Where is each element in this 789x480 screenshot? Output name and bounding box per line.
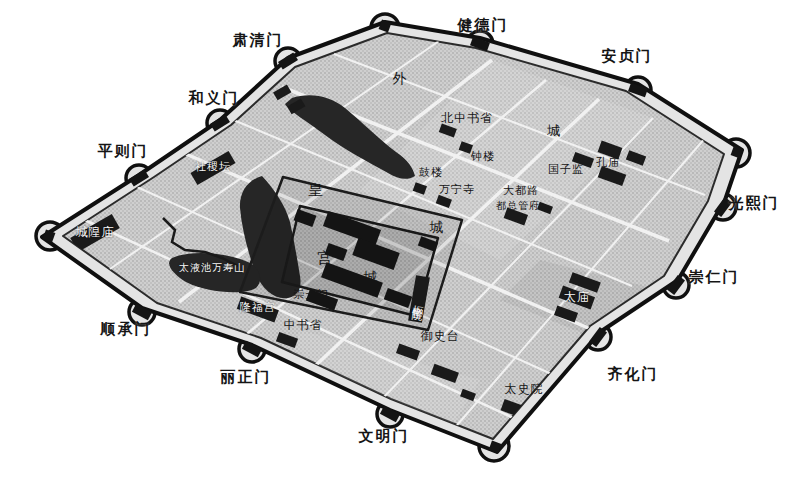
label-outer-city-wai: 外 [393,71,408,85]
label-gate-shunchengmen: 顺承门 [101,322,152,337]
label-gate-suqingmen: 肃清门 [233,33,284,48]
label-gulou: 鼓楼 [419,167,443,178]
label-shejitan: 社稷坛 [195,161,231,172]
label-palace-gong: 宫 [317,251,333,266]
label-taiyechi-wanshoushan: 太液池万寿山 [179,263,245,273]
label-outer-city-cheng: 城 [547,124,561,137]
label-taimiao: 太庙 [564,291,590,303]
label-guozijian: 国子监 [548,164,584,175]
label-bei-zhongshusheng: 北中书省 [441,112,493,124]
label-zhongshusheng: 中书省 [284,319,323,331]
label-dadulu: 大都路 [503,185,539,196]
label-gate-wenmingmen: 文明门 [359,429,410,444]
label-gate-anzhenmen: 安贞门 [602,49,653,64]
label-gate-heyimen: 和义门 [189,91,240,106]
label-zhonglou: 钟楼 [471,151,495,162]
label-imperial-huang: 皇 [308,183,324,198]
label-gate-lizhengmen: 丽正门 [221,370,272,385]
yuan-dadu-city-map: 肃清门 健德门 安贞门 和义门 平则门 光熙门 崇仁门 齐化门 顺承门 丽正门 … [0,0,789,480]
label-taishiyuan: 太史院 [505,383,544,395]
label-gate-jiandemen: 健德门 [458,18,509,33]
label-chongtianmen: 崇天门 [293,289,329,300]
label-gate-guangximen: 光熙门 [729,196,780,211]
label-duzongguanfu: 都总管府 [496,201,540,211]
label-gate-qihuamen: 齐化门 [608,367,659,382]
label-kongmiao: 孔庙 [596,157,620,168]
label-wanningsi: 万宁寺 [439,184,475,195]
label-palace-cheng: 城 [364,270,379,284]
label-yushitai: 御史台 [421,330,460,342]
label-imperial-cheng: 城 [430,220,445,234]
label-longfugong: 隆福宫 [240,302,276,313]
label-gate-pingzemen: 平则门 [98,144,149,159]
label-gate-chongrenmen: 崇仁门 [689,270,740,285]
label-chenghuangmiao: 城隍庙 [76,226,115,238]
